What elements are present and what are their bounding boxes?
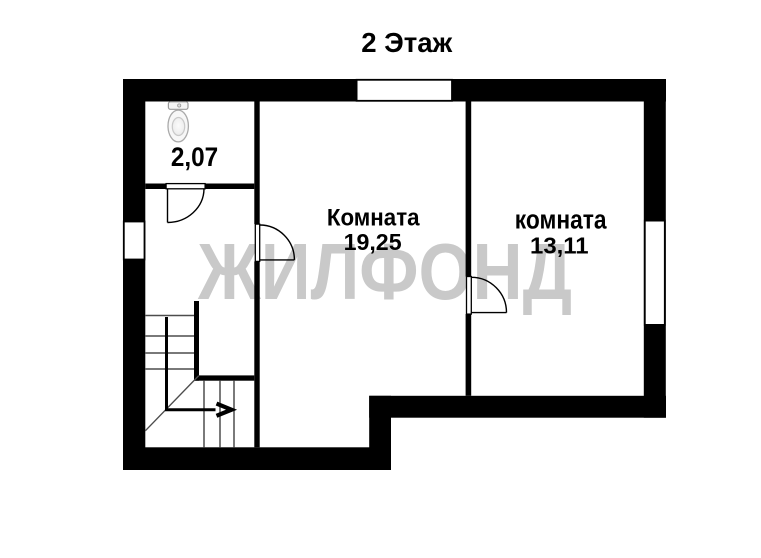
svg-text:13,11: 13,11 [530, 232, 589, 258]
svg-text:19,25: 19,25 [344, 229, 402, 255]
svg-text:2 Этаж: 2 Этаж [361, 27, 453, 58]
svg-text:2,07: 2,07 [171, 142, 218, 172]
svg-text:Комната: Комната [327, 205, 420, 232]
svg-text:комната: комната [515, 205, 607, 235]
